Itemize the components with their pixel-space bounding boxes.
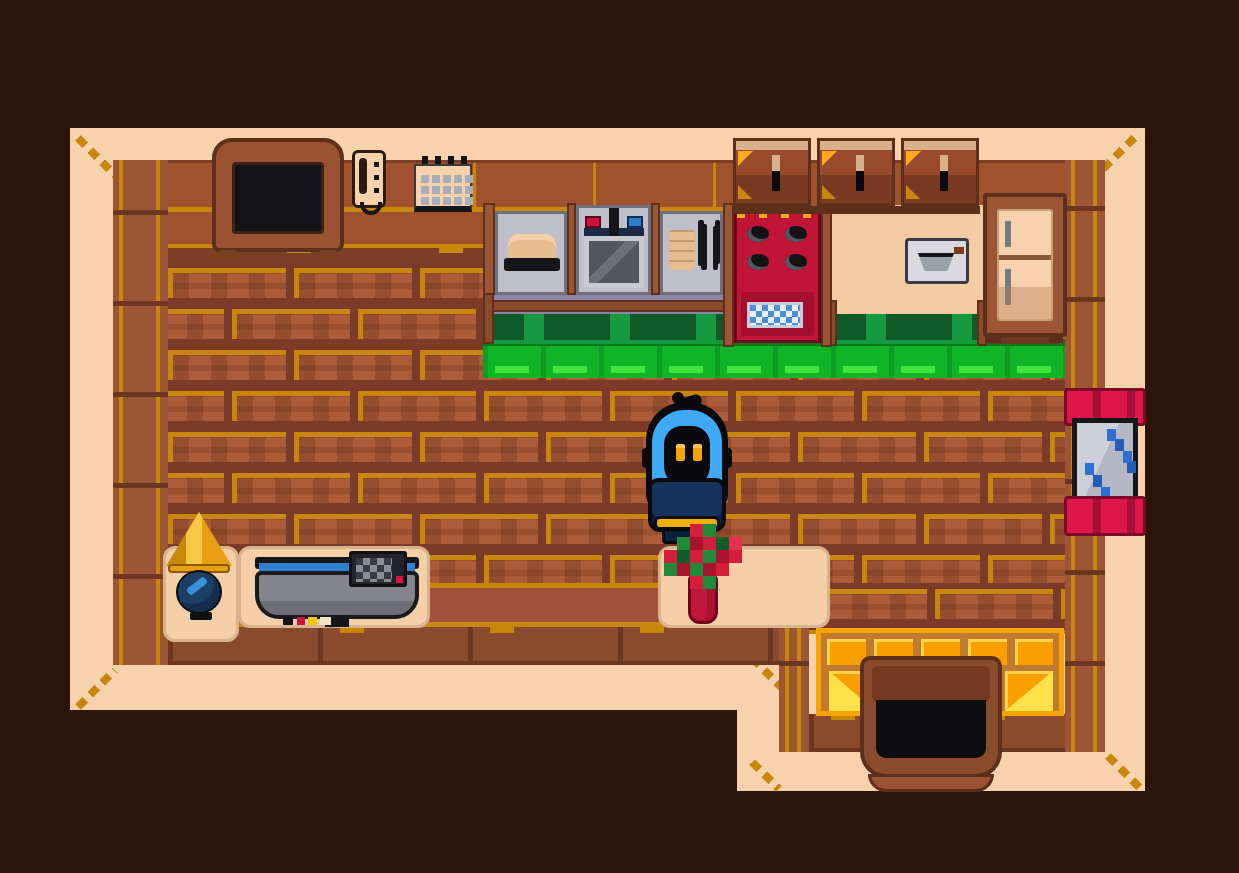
hood-side-nub: [724, 448, 732, 468]
utensil-knife: [713, 226, 718, 270]
gold-accent-icon: [906, 151, 921, 166]
phone-handset: [359, 158, 367, 194]
floor-brick: [294, 350, 412, 380]
stove-burner: [785, 226, 807, 242]
floor-brick: [168, 473, 224, 503]
bread-pan: [504, 258, 560, 271]
lamp-base: [176, 570, 222, 614]
fridge-door-split: [999, 255, 1051, 260]
floor-brick: [420, 432, 538, 462]
console-power-light: [396, 576, 403, 583]
front-door[interactable]: [860, 650, 1006, 792]
table-button: [297, 617, 305, 625]
door-lintel: [872, 666, 990, 702]
floor-brick: [232, 391, 350, 421]
calendar-grid: [421, 175, 429, 183]
hot-tap-knob[interactable]: [585, 216, 601, 228]
mat-triangle-icon: [1005, 671, 1053, 711]
wall-telephone[interactable]: [352, 150, 390, 218]
flower-bouquet: [664, 524, 677, 537]
table-button: [308, 617, 317, 625]
oven-window[interactable]: [747, 302, 803, 328]
eye-right: [693, 444, 702, 461]
cabinet-door[interactable]: [901, 138, 979, 206]
stove-burner: [747, 254, 769, 270]
floor-brick: [358, 391, 476, 421]
counter-leg: [483, 292, 494, 344]
hedge-left: [494, 314, 724, 344]
floor-brick: [294, 514, 412, 544]
toaster-slot: [918, 253, 954, 271]
table-button: [320, 617, 331, 625]
lamp-shade: [166, 512, 232, 566]
floor-brick: [1050, 514, 1065, 544]
utensil-fork: [701, 224, 707, 270]
floor-brick: [358, 309, 476, 339]
fridge-body: [997, 209, 1053, 321]
floor-brick: [168, 391, 224, 421]
calendar-body: [414, 164, 472, 212]
wall-trim-left: [113, 160, 168, 665]
fridge-foot: [1049, 333, 1063, 343]
fridge-handle-top[interactable]: [1005, 221, 1011, 247]
sink-basin: [584, 236, 644, 288]
mat-side-right: [1005, 671, 1053, 711]
gold-accent-icon: [822, 151, 837, 166]
floor-brick: [736, 391, 854, 421]
floor-brick: [935, 589, 1053, 619]
cabinet-handle: [772, 155, 780, 191]
counter-post: [651, 203, 660, 295]
floor-brick: [924, 514, 1042, 544]
tv-leg: [320, 250, 336, 262]
stove-post: [723, 203, 734, 347]
floor-brick: [988, 473, 1065, 503]
cabinet-handle: [940, 155, 948, 191]
bread-loaf: [508, 234, 556, 260]
mat-cell: [1015, 639, 1053, 665]
kitchen-counter-unit[interactable]: [483, 203, 735, 295]
floor-brick: [798, 432, 916, 462]
table-button: [283, 617, 293, 625]
flower-table: [658, 546, 830, 628]
console-vents: [356, 558, 392, 582]
counter-section-plates: [660, 211, 723, 295]
floor-brick: [484, 391, 602, 421]
floor-brick: [484, 473, 602, 503]
door-step: [868, 774, 994, 792]
lamp[interactable]: [166, 512, 238, 622]
floor-brick: [420, 514, 538, 544]
curtain-bottom: [1064, 496, 1146, 536]
floor-brick: [168, 268, 286, 298]
floor-extension: [809, 583, 1065, 634]
fridge-foot: [987, 333, 1001, 343]
toaster-lever[interactable]: [954, 247, 964, 254]
counter-post: [483, 203, 495, 295]
counter-rail: [490, 300, 728, 312]
floor-brick: [1061, 589, 1065, 619]
window-rain-streaks: [1081, 427, 1090, 439]
baseboard-main: [168, 627, 779, 665]
window[interactable]: [1064, 388, 1146, 536]
sink-section[interactable]: [576, 205, 651, 295]
phone-cord: [360, 202, 382, 215]
floor-brick: [988, 555, 1065, 583]
game-console[interactable]: [349, 551, 407, 587]
counter-post: [567, 203, 576, 295]
cabinet-handle: [856, 155, 864, 191]
floor-brick: [232, 309, 350, 339]
stove-post: [821, 203, 832, 347]
game-scene: [0, 0, 1239, 873]
hood-side-nub: [642, 448, 650, 468]
flower-vase[interactable]: [688, 574, 718, 624]
floor-brick: [862, 391, 980, 421]
wall-calendar[interactable]: [414, 156, 472, 214]
floor-brick: [294, 432, 412, 462]
floor-brick: [484, 555, 602, 583]
wall-tv[interactable]: [212, 138, 344, 262]
floor-brick: [168, 309, 224, 339]
stove[interactable]: [723, 203, 832, 347]
cold-tap-knob[interactable]: [627, 216, 643, 228]
floor-brick: [168, 350, 286, 380]
floor-brick: [232, 473, 350, 503]
player-character[interactable]: [634, 392, 738, 548]
hedge-right: [836, 314, 986, 344]
floor-brick: [798, 514, 916, 544]
phone-buttons: [374, 162, 379, 167]
cabinet-door[interactable]: [733, 138, 811, 206]
fridge[interactable]: [983, 193, 1067, 345]
toaster[interactable]: [905, 238, 969, 284]
lamp-foot: [190, 612, 212, 620]
stove-burner: [747, 226, 769, 242]
stove-body: [734, 207, 821, 343]
tv-leg: [220, 250, 236, 262]
floor-brick: [358, 473, 476, 503]
counter-section-bread: [495, 211, 567, 295]
gold-accent-icon: [738, 185, 752, 199]
floor-brick: [862, 555, 980, 583]
eye-left: [676, 444, 685, 461]
plate-stack: [669, 230, 695, 270]
stove-burner: [785, 254, 807, 270]
floor-brick: [168, 432, 286, 462]
floor-brick: [988, 391, 1065, 421]
floor-brick: [862, 473, 980, 503]
gold-accent-icon: [906, 185, 920, 199]
floor-brick: [1050, 432, 1065, 462]
door-opening[interactable]: [876, 700, 986, 758]
floor-brick: [736, 473, 854, 503]
tv-screen: [232, 162, 324, 234]
cabinet-door[interactable]: [817, 138, 895, 206]
overhead-cabinets[interactable]: [733, 136, 980, 214]
gold-accent-icon: [822, 185, 836, 199]
cabinet-shadow: [733, 206, 980, 214]
floor-brick: [924, 432, 1042, 462]
phone-body: [352, 150, 386, 208]
media-table: [238, 546, 430, 628]
floor-brick: [294, 268, 412, 298]
fridge-lower-shade: [999, 287, 1051, 319]
gold-accent-icon: [738, 151, 753, 166]
